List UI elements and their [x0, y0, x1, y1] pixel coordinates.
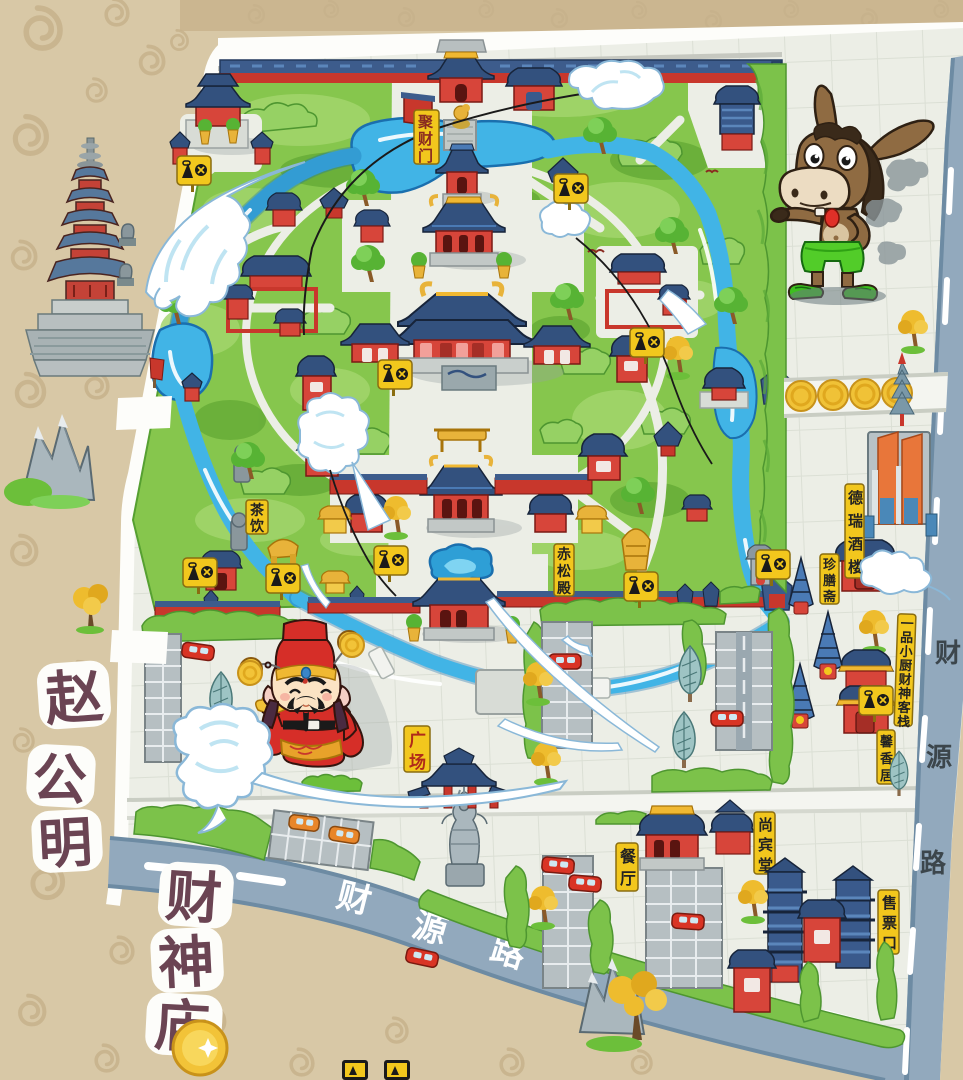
svg-text:栈: 栈 [897, 714, 911, 729]
svg-text:票: 票 [882, 915, 897, 932]
svg-text:财: 财 [164, 864, 224, 931]
svg-text:场: 场 [409, 753, 426, 772]
svg-text:公: 公 [31, 749, 88, 812]
svg-text:瑞: 瑞 [848, 512, 863, 530]
svg-text:门: 门 [418, 147, 433, 165]
svg-text:赵: 赵 [43, 664, 105, 733]
svg-text:德: 德 [848, 489, 863, 507]
svg-text:餐: 餐 [619, 847, 637, 866]
svg-text:酒: 酒 [848, 536, 863, 553]
svg-text:斋: 斋 [822, 589, 837, 604]
svg-text:松: 松 [557, 563, 571, 579]
svg-text:饮: 饮 [249, 518, 265, 534]
svg-text:膳: 膳 [823, 573, 836, 588]
svg-text:明: 明 [37, 813, 94, 876]
svg-text:财: 财 [418, 130, 433, 148]
svg-text:厅: 厅 [620, 870, 636, 888]
svg-text:神: 神 [157, 930, 216, 996]
svg-text:路: 路 [920, 848, 947, 878]
svg-text:珍: 珍 [823, 557, 837, 572]
svg-text:宾: 宾 [758, 836, 773, 854]
svg-text:源: 源 [926, 742, 952, 772]
svg-text:尚: 尚 [758, 816, 773, 834]
svg-text:赤: 赤 [557, 546, 571, 562]
svg-text:售: 售 [882, 894, 897, 912]
svg-text:财: 财 [935, 638, 961, 668]
svg-text:殿: 殿 [556, 580, 572, 596]
svg-text:茶: 茶 [249, 502, 265, 518]
svg-text:馨: 馨 [879, 734, 894, 749]
svg-text:广: 广 [409, 730, 426, 750]
svg-text:聚: 聚 [417, 114, 434, 131]
